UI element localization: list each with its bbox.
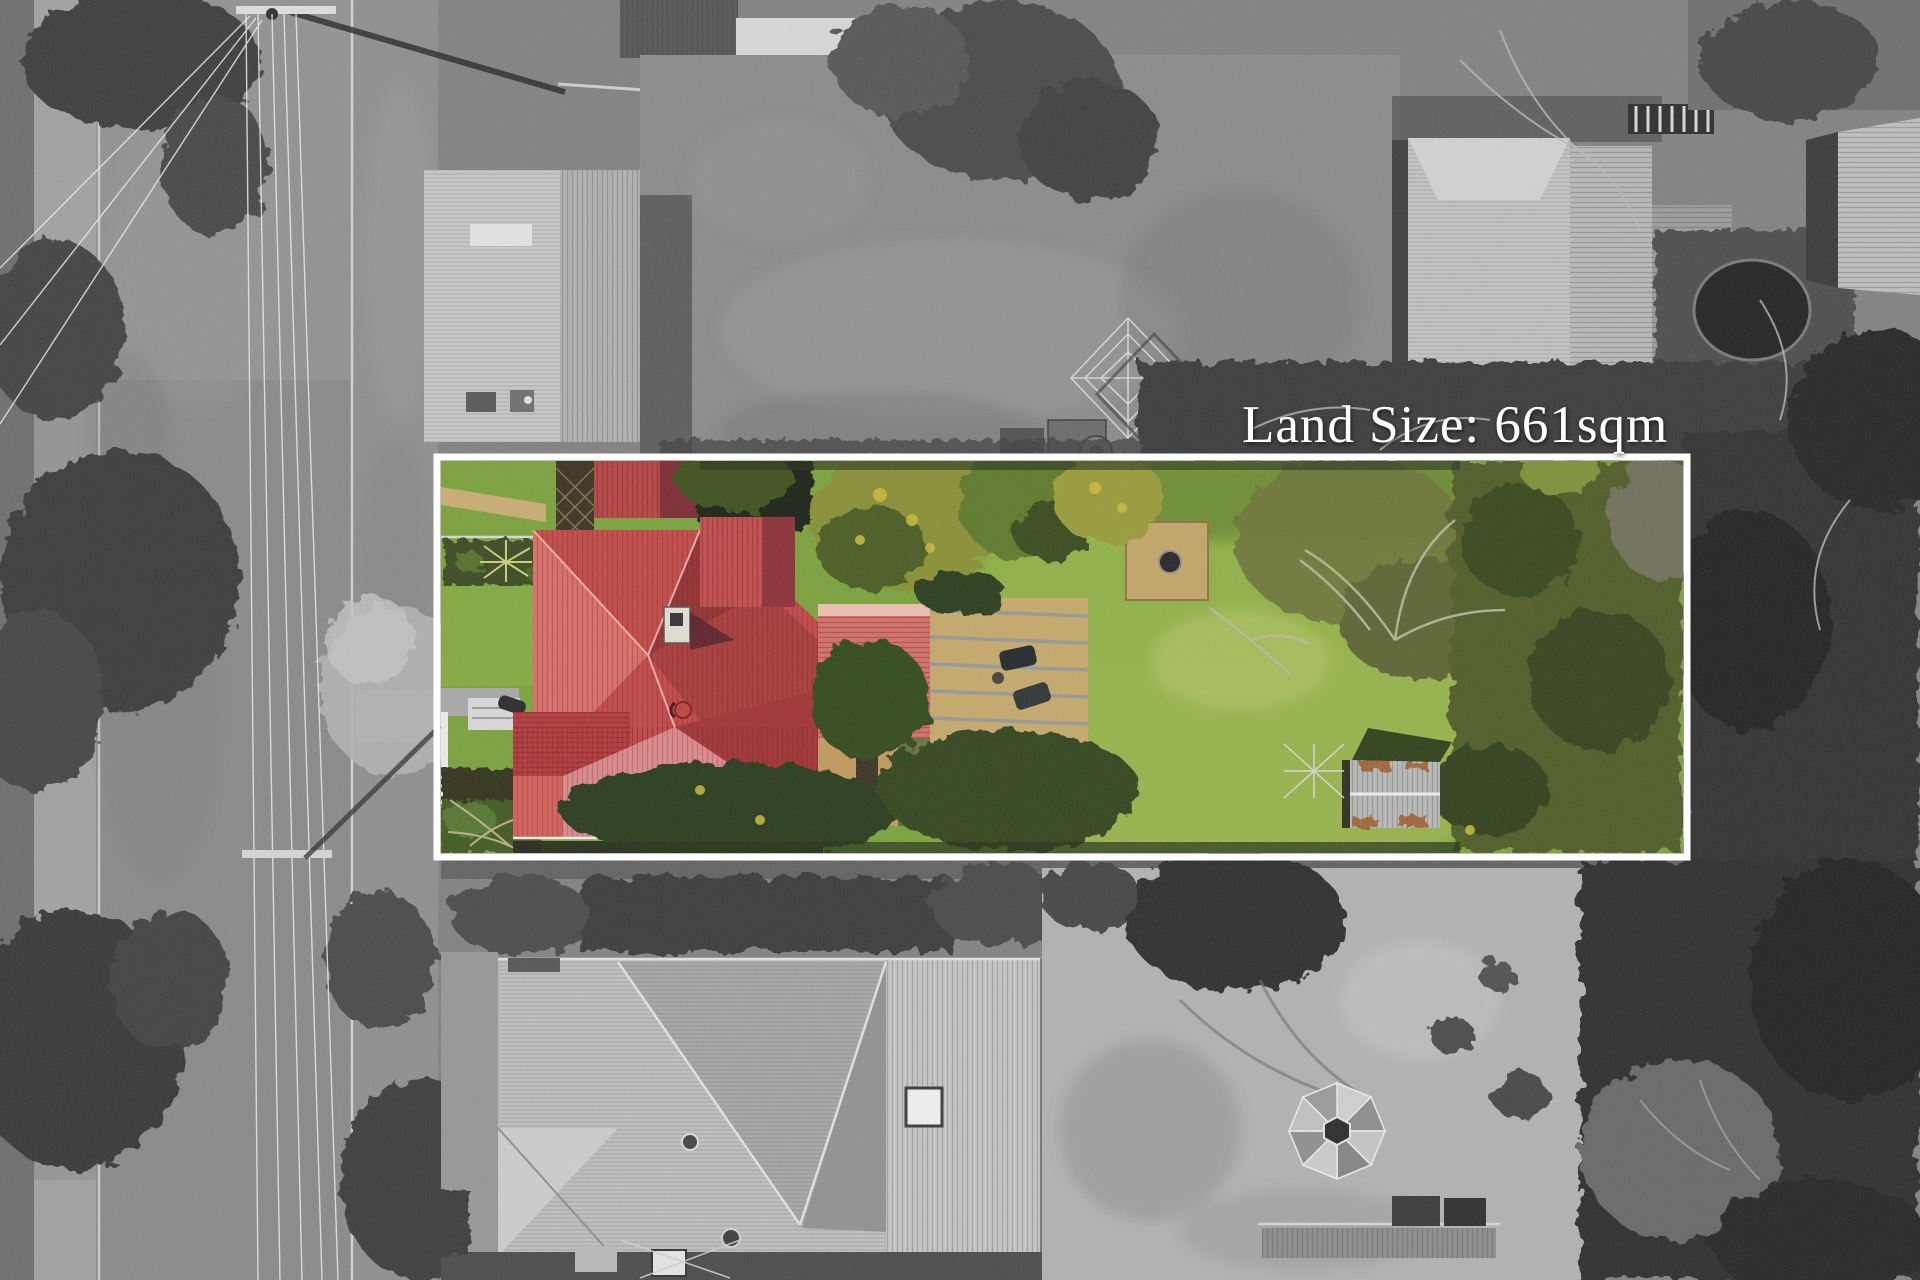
aerial-photo: Land Size: 661sqm [0,0,1920,1280]
land-size-label: Land Size: 661sqm [1242,396,1668,454]
aerial-photo-canvas: Land Size: 661sqm [0,0,1920,1280]
film-grain [0,0,1920,1280]
